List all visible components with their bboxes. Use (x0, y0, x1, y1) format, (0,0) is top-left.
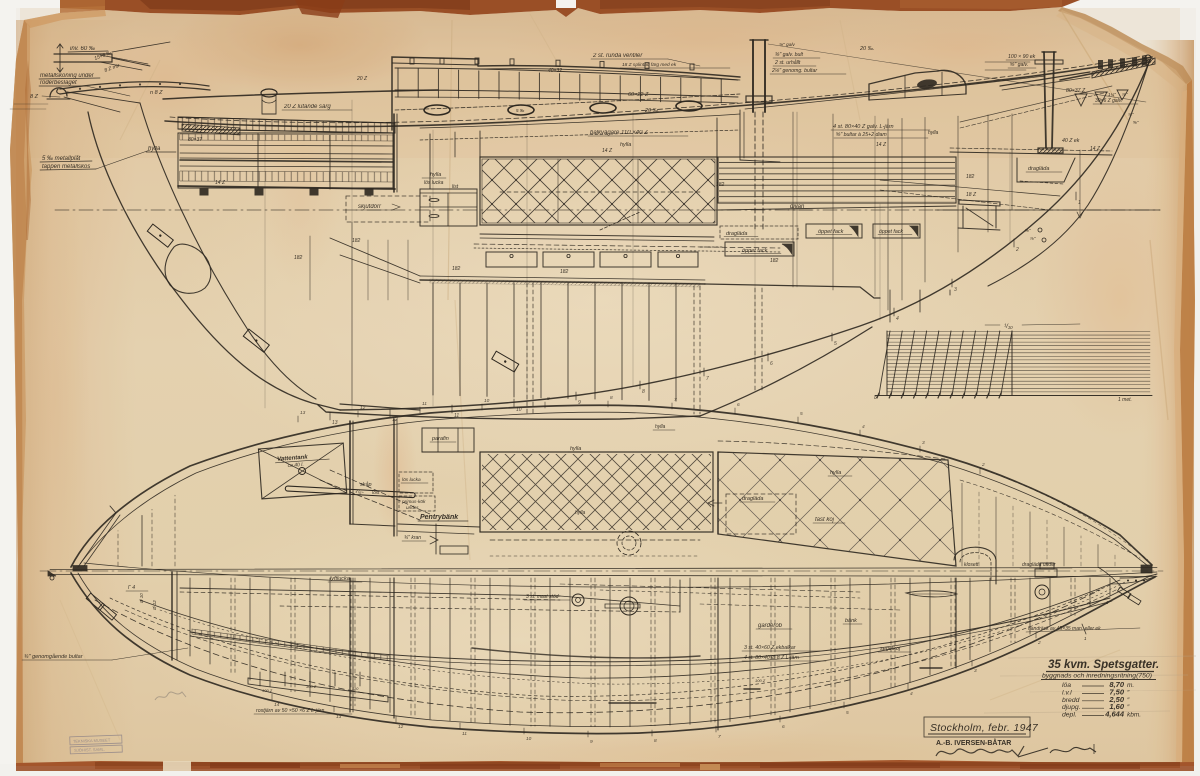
svg-text:5 ‰: 5 ‰ (516, 108, 525, 113)
svg-text:⅞": ⅞" (1030, 236, 1036, 241)
svg-text:hylla: hylla (830, 470, 841, 476)
svg-text:¾" genomgående bultar: ¾" genomgående bultar (24, 653, 84, 660)
svg-text:4 st. 80×40 Ø 8 Z L-järn: 4 st. 80×40 Ø 8 Z L-järn (744, 655, 799, 661)
svg-text:182: 182 (966, 174, 975, 180)
svg-text:2: 2 (981, 462, 985, 468)
svg-text:Stockholm, febr. 1947: Stockholm, febr. 1947 (930, 722, 1039, 734)
svg-text:8: 8 (654, 738, 657, 744)
svg-text:djupg.: djupg. (1062, 704, 1081, 711)
svg-text:list: list (452, 184, 459, 190)
svg-text:fast koj: fast koj (815, 517, 835, 523)
svg-text:handräck av 45×35 man. eller: handräck av 45×35 man. eller ek (1028, 626, 1101, 632)
svg-text:11: 11 (422, 401, 427, 407)
svg-text:14 Z: 14 Z (1090, 146, 1101, 152)
svg-text:18 Z: 18 Z (966, 192, 977, 198)
svg-text:byggnads och inredningsritnin: byggnads och inredningsritning(750) (1042, 673, 1152, 680)
svg-text:182: 182 (452, 266, 461, 272)
svg-text:löa: löa (1062, 682, 1071, 689)
svg-text:rostjärn av 50 ×50 ×6 Z L-järn: rostjärn av 50 ×50 ×6 Z L-järn (256, 708, 324, 714)
svg-text:20 ‰.: 20 ‰. (644, 108, 660, 114)
svg-text:182: 182 (716, 182, 725, 188)
svg-text:3: 3 (974, 668, 977, 674)
svg-text:5 ‰ metallplåt: 5 ‰ metallplåt (42, 155, 81, 162)
svg-text:13: 13 (300, 410, 306, 416)
svg-text:⅝" bultar à 25+2 diam: ⅝" bultar à 25+2 diam (836, 132, 887, 138)
svg-text:20 ‰.: 20 ‰. (859, 46, 875, 52)
svg-text:hylla: hylla (575, 510, 586, 516)
svg-text:segelkoj: segelkoj (880, 646, 901, 652)
svg-text:depl.: depl. (1062, 712, 1077, 719)
svg-text:A.-B. IVERSEN-BÅTAR: A.-B. IVERSEN-BÅTAR (936, 738, 1011, 747)
svg-text:14 Z: 14 Z (876, 142, 887, 148)
svg-text:klosett: klosett (964, 562, 979, 568)
svg-text:öppet fack: öppet fack (742, 248, 768, 254)
svg-text:⅝": ⅝" (1025, 228, 1031, 233)
svg-text:2: 2 (1037, 640, 1041, 646)
svg-text:lös lucka: lös lucka (402, 477, 421, 483)
svg-text:9: 9 (590, 739, 593, 745)
svg-text:Γ 4: Γ 4 (128, 585, 135, 591)
svg-text:bänk: bänk (845, 618, 857, 624)
svg-text:5: 5 (846, 710, 849, 716)
svg-text:5: 5 (834, 341, 837, 347)
svg-text:Ø 10: Ø 10 (139, 593, 144, 604)
svg-text:182: 182 (770, 258, 779, 264)
svg-text:lyftlucka: lyftlucka (330, 576, 350, 582)
svg-text:6: 6 (782, 724, 785, 730)
svg-text:skjutdörr: skjutdörr (358, 204, 382, 210)
svg-text:3 st. 40×60 Z ekbalkar: 3 st. 40×60 Z ekbalkar (744, 645, 796, 651)
svg-text:öppet fack: öppet fack (879, 229, 903, 235)
svg-text:primus-kök: primus-kök (401, 499, 426, 505)
svg-text:hylla: hylla (928, 130, 939, 136)
svg-text:12: 12 (360, 405, 366, 411)
svg-text:parafin: parafin (431, 436, 449, 442)
svg-text:300 Z: 300 Z (306, 684, 317, 689)
svg-text:20 Z lutande särg: 20 Z lutande särg (283, 104, 331, 110)
svg-text:14 Z: 14 Z (215, 180, 226, 186)
svg-text:12: 12 (398, 724, 404, 730)
svg-text:18 Z splintad färg med ek: 18 Z splintad färg med ek (622, 62, 677, 68)
svg-text:100 Z: 100 Z (755, 678, 766, 683)
svg-text:100 Z: 100 Z (262, 688, 273, 693)
svg-text:balkvägare 110 ×40 Z: balkvägare 110 ×40 Z (590, 130, 648, 136)
svg-text:8: 8 (642, 389, 645, 395)
svg-text:hylla: hylla (655, 424, 666, 430)
svg-text:7: 7 (674, 397, 677, 403)
svg-text:garderob: garderob (758, 623, 783, 629)
svg-text:182: 182 (560, 269, 569, 275)
svg-text:dragläda: dragläda (726, 231, 747, 237)
svg-text:1: 1 (1078, 200, 1081, 206)
svg-text:100 × 90 ek: 100 × 90 ek (1008, 54, 1036, 60)
svg-text:¾" kran: ¾" kran (404, 535, 421, 541)
svg-text:¹/₁₀: ¹/₁₀ (1004, 323, 1013, 330)
svg-text:4 st. 80×40 Z galv. L-järn: 4 st. 80×40 Z galv. L-järn (833, 124, 894, 130)
svg-text:⅝": ⅝" (1133, 120, 1139, 125)
svg-text:13: 13 (332, 420, 338, 426)
svg-text:3: 3 (954, 287, 957, 293)
svg-text:1 met.: 1 met. (1118, 397, 1132, 403)
svg-text:182: 182 (352, 238, 361, 244)
svg-text:m.: m. (1127, 682, 1134, 689)
svg-text:8: 8 (610, 395, 613, 401)
svg-text:⅝" galv.: ⅝" galv. (1010, 62, 1028, 68)
svg-text:dragläda: dragläda (1028, 166, 1049, 172)
svg-text:182: 182 (294, 255, 303, 261)
svg-text:9: 9 (547, 396, 550, 402)
svg-text:40 Z ek: 40 Z ek (1062, 138, 1080, 144)
svg-text:hylla: hylla (148, 146, 161, 152)
svg-text:hylla: hylla (430, 172, 441, 178)
svg-text:2⅛" genomg. bultar: 2⅛" genomg. bultar (771, 68, 817, 74)
svg-text:35 kvm. Spetsgatter.: 35 kvm. Spetsgatter. (1048, 659, 1159, 671)
svg-text:10: 10 (526, 736, 532, 742)
svg-text:3 st. mast stöd: 3 st. mast stöd (526, 594, 559, 600)
svg-text:14: 14 (274, 702, 280, 708)
svg-text:Pentrybänk: Pentrybänk (420, 514, 459, 521)
svg-text:4,644: 4,644 (1104, 710, 1125, 719)
svg-text:4: 4 (862, 424, 865, 430)
svg-text:7: 7 (706, 376, 709, 382)
svg-text:60×22 Z: 60×22 Z (628, 92, 649, 98)
svg-text:SJÖHIST. SAML.: SJÖHIST. SAML. (74, 747, 105, 753)
svg-text:under: under (406, 505, 419, 511)
svg-text:14 Z: 14 Z (602, 148, 613, 154)
svg-text:hylla: hylla (570, 446, 581, 452)
svg-text:3: 3 (922, 440, 925, 446)
svg-text:13: 13 (336, 714, 342, 720)
svg-text:2: 2 (1015, 247, 1019, 253)
svg-text:5: 5 (800, 411, 803, 417)
svg-text:roderbeslaget: roderbeslaget (40, 80, 77, 86)
svg-text:2 st. runda ventiler: 2 st. runda ventiler (592, 53, 643, 59)
svg-text:4: 4 (896, 316, 899, 322)
svg-text:6: 6 (770, 361, 773, 367)
svg-text:110: 110 (352, 686, 359, 691)
svg-text:skåp: skåp (360, 481, 372, 488)
svg-text:l.v.l: l.v.l (1062, 689, 1072, 696)
svg-text:n 8 Z: n 8 Z (150, 90, 163, 96)
svg-text:2 st. urhållt: 2 st. urhållt (774, 59, 801, 66)
svg-text:6: 6 (737, 402, 740, 408)
svg-text:dragläda: dragläda (742, 496, 763, 502)
svg-text:4: 4 (910, 691, 913, 697)
svg-text:⅜": ⅜" (1128, 112, 1134, 117)
svg-text:7: 7 (718, 734, 721, 740)
svg-text:kbm.: kbm. (1127, 712, 1141, 719)
svg-text:bredd: bredd (1062, 697, 1080, 704)
svg-text:20 Z: 20 Z (356, 76, 368, 82)
svg-text:40×32: 40×32 (548, 68, 562, 74)
svg-text:8 Z: 8 Z (30, 94, 39, 100)
svg-text:ca 40 l.: ca 40 l. (287, 462, 304, 469)
svg-text:öppet fack: öppet fack (818, 229, 844, 235)
svg-text:⅜" galv. bult: ⅜" galv. bult (775, 52, 804, 58)
svg-text:1¼": 1¼" (1108, 92, 1116, 97)
svg-text:hylla: hylla (620, 142, 631, 148)
svg-text:Ø 12: Ø 12 (152, 600, 157, 611)
svg-text:lös lucka: lös lucka (424, 180, 444, 186)
svg-text:10: 10 (484, 398, 490, 404)
svg-text:11: 11 (462, 731, 467, 737)
